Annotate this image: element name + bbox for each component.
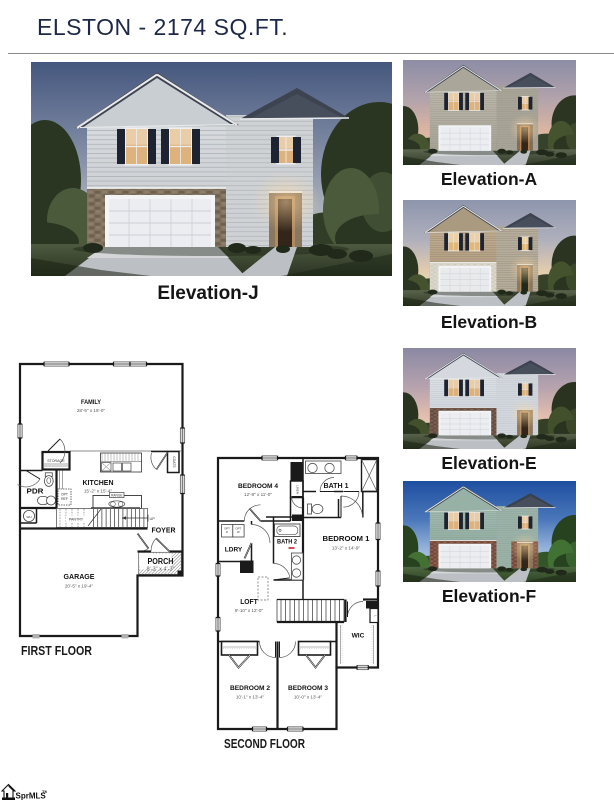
svg-text:RANGE: RANGE: [111, 494, 122, 498]
svg-text:8'-3" x 4'-3": 8'-3" x 4'-3": [147, 567, 175, 573]
svg-text:15'-2" x 15'-4": 15'-2" x 15'-4": [84, 489, 113, 494]
svg-text:TM: TM: [42, 789, 47, 794]
svg-text:BATH 1: BATH 1: [324, 483, 349, 490]
svg-text:LDRY: LDRY: [225, 547, 243, 554]
svg-text:BEDROOM 1: BEDROOM 1: [323, 536, 370, 543]
svg-text:PORCH: PORCH: [148, 557, 174, 566]
svg-text:20'-5" x 19'-4": 20'-5" x 19'-4": [65, 584, 94, 589]
svg-text:BEDROOM 2: BEDROOM 2: [230, 685, 270, 692]
svg-text:COATS: COATS: [172, 456, 176, 468]
svg-text:BEDROOM 3: BEDROOM 3: [288, 685, 328, 692]
svg-text:W: W: [237, 530, 240, 534]
svg-text:LOFT: LOFT: [240, 597, 258, 606]
svg-text:FAMILY: FAMILY: [81, 399, 102, 406]
svg-text:UP: UP: [150, 517, 156, 521]
svg-text:12'-8" x 11'-0": 12'-8" x 11'-0": [244, 492, 272, 497]
svg-text:REF: REF: [61, 497, 68, 501]
svg-text:WH: WH: [27, 515, 32, 519]
svg-text:WIC: WIC: [352, 633, 365, 640]
svg-text:13'-2" x 14'-9": 13'-2" x 14'-9": [332, 546, 361, 551]
svg-text:PDR: PDR: [27, 487, 45, 496]
svg-text:BATH 2: BATH 2: [277, 539, 297, 546]
svg-text:LINEN: LINEN: [296, 485, 300, 494]
svg-text:10'-0" x 13'-4": 10'-0" x 13'-4": [294, 695, 323, 700]
svg-text:PANTRY: PANTRY: [69, 518, 84, 522]
svg-text:BEDROOM 4: BEDROOM 4: [238, 483, 278, 490]
svg-text:9'-10" x 12'-0": 9'-10" x 12'-0": [235, 608, 264, 613]
svg-text:10'-1" x 13'-4": 10'-1" x 13'-4": [236, 695, 265, 700]
svg-text:FOYER: FOYER: [152, 526, 176, 535]
svg-text:SECOND FLOOR: SECOND FLOOR: [224, 737, 305, 751]
svg-text:FIRST FLOOR: FIRST FLOOR: [21, 644, 92, 658]
svg-text:D: D: [226, 530, 228, 534]
svg-text:28'-5" x 15'-0": 28'-5" x 15'-0": [77, 408, 106, 413]
svg-text:GARAGE: GARAGE: [64, 572, 95, 581]
svg-text:KITCHEN: KITCHEN: [83, 478, 114, 487]
